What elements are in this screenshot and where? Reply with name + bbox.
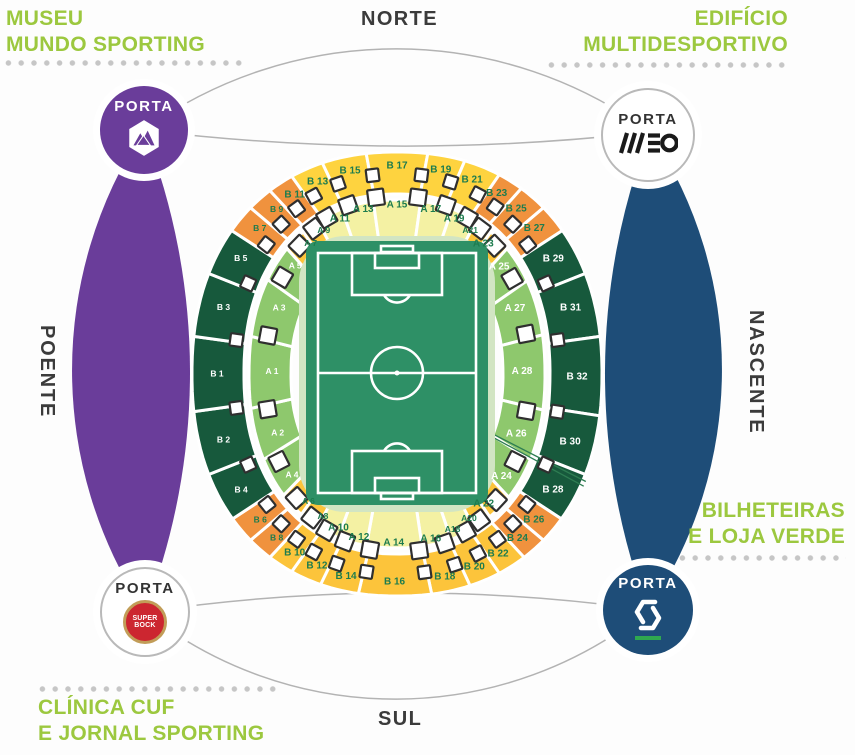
section-label: A18: [445, 524, 461, 534]
section-label: A 4: [286, 470, 299, 480]
section-label: A 2: [271, 428, 284, 438]
porta-super-bock-gate[interactable]: PORTA SUPER BOCK: [100, 567, 190, 657]
gate-marker: [229, 333, 243, 347]
gate-marker: [229, 401, 243, 415]
section-label: B 14: [335, 571, 357, 582]
gate-marker: [443, 174, 459, 190]
section-label: A 25: [489, 262, 510, 273]
compass-east: NASCENTE: [744, 310, 767, 434]
section-label: B 16: [384, 577, 406, 588]
section-label: A 14: [383, 538, 404, 549]
gate-marker: [366, 168, 380, 182]
porta-label: PORTA: [618, 575, 677, 592]
label-edificio-multidesportivo: EDIFÍCIO MULTIDESPORTIVO: [583, 6, 788, 58]
section-label: A 9: [317, 225, 330, 235]
section-label: B 15: [339, 165, 361, 176]
meo-logo-icon: [618, 131, 678, 160]
section-label: A 6: [302, 496, 315, 506]
section-label: B 25: [506, 203, 528, 214]
section-label: A 15: [387, 200, 408, 211]
gate-marker: [550, 405, 564, 419]
section-label: B 9: [270, 204, 284, 214]
section-label: B 29: [543, 253, 565, 264]
gate-marker: [551, 333, 565, 347]
label-bilheteiras-loja-verde: BILHETEIRAS E LOJA VERDE: [688, 498, 845, 550]
section-label: A21: [462, 225, 478, 235]
section-label: A8: [317, 511, 328, 521]
super-bock-logo-icon: SUPER BOCK: [123, 600, 167, 644]
section-label: B 6: [254, 514, 268, 524]
section-label: B 11: [284, 190, 305, 201]
gate-marker: [417, 565, 431, 579]
label-clinica-cuf-jornal-sporting: CLÍNICA CUF E JORNAL SPORTING: [38, 695, 264, 747]
porta-cgd-gate[interactable]: PORTA: [603, 565, 693, 655]
section-label: B 21: [462, 175, 484, 186]
dotted-separator: [36, 686, 281, 692]
label-line: E JORNAL SPORTING: [38, 721, 264, 747]
section-label: A 28: [512, 366, 533, 377]
section-label: B 18: [434, 572, 456, 583]
label-line: EDIFÍCIO: [583, 6, 788, 32]
section-label: B 2: [217, 434, 231, 444]
section-label: B 20: [464, 562, 486, 573]
center-spot: [395, 371, 400, 376]
gate-marker: [414, 168, 428, 182]
section-label: A 27: [505, 303, 526, 314]
section-label: B 4: [234, 484, 248, 494]
poente-stand-arc: [72, 130, 190, 612]
section-label: A 5: [289, 261, 302, 271]
section-label: A 24: [491, 471, 512, 482]
label-line: E LOJA VERDE: [688, 524, 845, 550]
section-label: A 1: [266, 366, 279, 376]
compass-west: POENTE: [35, 325, 58, 418]
section-label: B 10: [284, 548, 306, 559]
section-label: A 26: [506, 429, 527, 440]
compass-south: SUL: [378, 708, 422, 731]
gate-marker: [259, 326, 278, 345]
section-label: B 7: [253, 223, 267, 233]
section-label: A 13: [353, 204, 374, 215]
section-label: B 13: [307, 177, 329, 188]
section-label: B 27: [524, 223, 546, 234]
section-label: B 17: [386, 161, 408, 172]
section-label: B 24: [507, 533, 529, 544]
porta-northwest-gate[interactable]: PORTA: [100, 86, 188, 174]
porta-label: PORTA: [114, 98, 173, 115]
label-line: MUNDO SPORTING: [6, 32, 205, 58]
section-label: B 19: [430, 165, 452, 176]
porta-label: PORTA: [115, 580, 174, 597]
section-label: B 8: [270, 532, 284, 542]
compass-north: NORTE: [361, 8, 438, 31]
section-label: A 10: [328, 523, 349, 534]
dotted-separator: [2, 60, 245, 66]
label-line: CLÍNICA CUF: [38, 695, 264, 721]
gate-marker: [517, 402, 536, 421]
label-line: MULTIDESPORTIVO: [583, 32, 788, 58]
section-label: B 3: [217, 302, 231, 312]
section-label: B 26: [523, 515, 545, 526]
section-label: B 32: [566, 372, 588, 383]
north-concourse-inner-arc: [144, 130, 650, 146]
logo-text: BOCK: [134, 622, 155, 629]
section-label: A 23: [473, 238, 494, 249]
gate-marker: [258, 400, 276, 418]
cgd-logo-icon: [627, 595, 669, 646]
section-label: A 17: [420, 204, 441, 215]
section-label: A 16: [420, 533, 441, 544]
section-label: B 23: [486, 188, 508, 199]
label-museu-mundo-sporting: MUSEU MUNDO SPORTING: [6, 6, 205, 58]
porta-label: PORTA: [618, 111, 677, 128]
section-label: A 3: [273, 303, 286, 313]
gate-marker: [330, 176, 346, 192]
section-label: A 11: [330, 214, 351, 225]
section-label: A 12: [349, 532, 370, 543]
section-label: A20: [461, 513, 477, 523]
mountain-hexagon-icon: [125, 118, 163, 163]
porta-meo-gate[interactable]: PORTA: [601, 88, 695, 182]
section-label: B 31: [560, 303, 582, 314]
gate-marker: [447, 557, 463, 573]
section-label: B 1: [210, 368, 224, 378]
gate-marker: [359, 565, 373, 579]
section-label: B 22: [487, 548, 509, 559]
gate-marker: [329, 556, 345, 572]
label-line: BILHETEIRAS: [688, 498, 845, 524]
dotted-separator: [676, 555, 846, 561]
stadium-map: B 13B 15B 17B 19B 21B 23B 25B 27B 29B 31…: [0, 0, 855, 755]
section-label: A 22: [473, 498, 494, 509]
section-label: B 5: [234, 253, 248, 263]
section-label: B 30: [560, 437, 582, 448]
section-label: B 12: [306, 560, 328, 571]
dotted-separator: [545, 62, 785, 68]
label-line: MUSEU: [6, 6, 205, 32]
section-label: A 19: [444, 214, 465, 225]
section-label: A 7: [304, 238, 317, 248]
gate-marker: [516, 325, 535, 344]
logo-text: SUPER: [132, 615, 157, 622]
section-label: B 28: [542, 485, 564, 496]
